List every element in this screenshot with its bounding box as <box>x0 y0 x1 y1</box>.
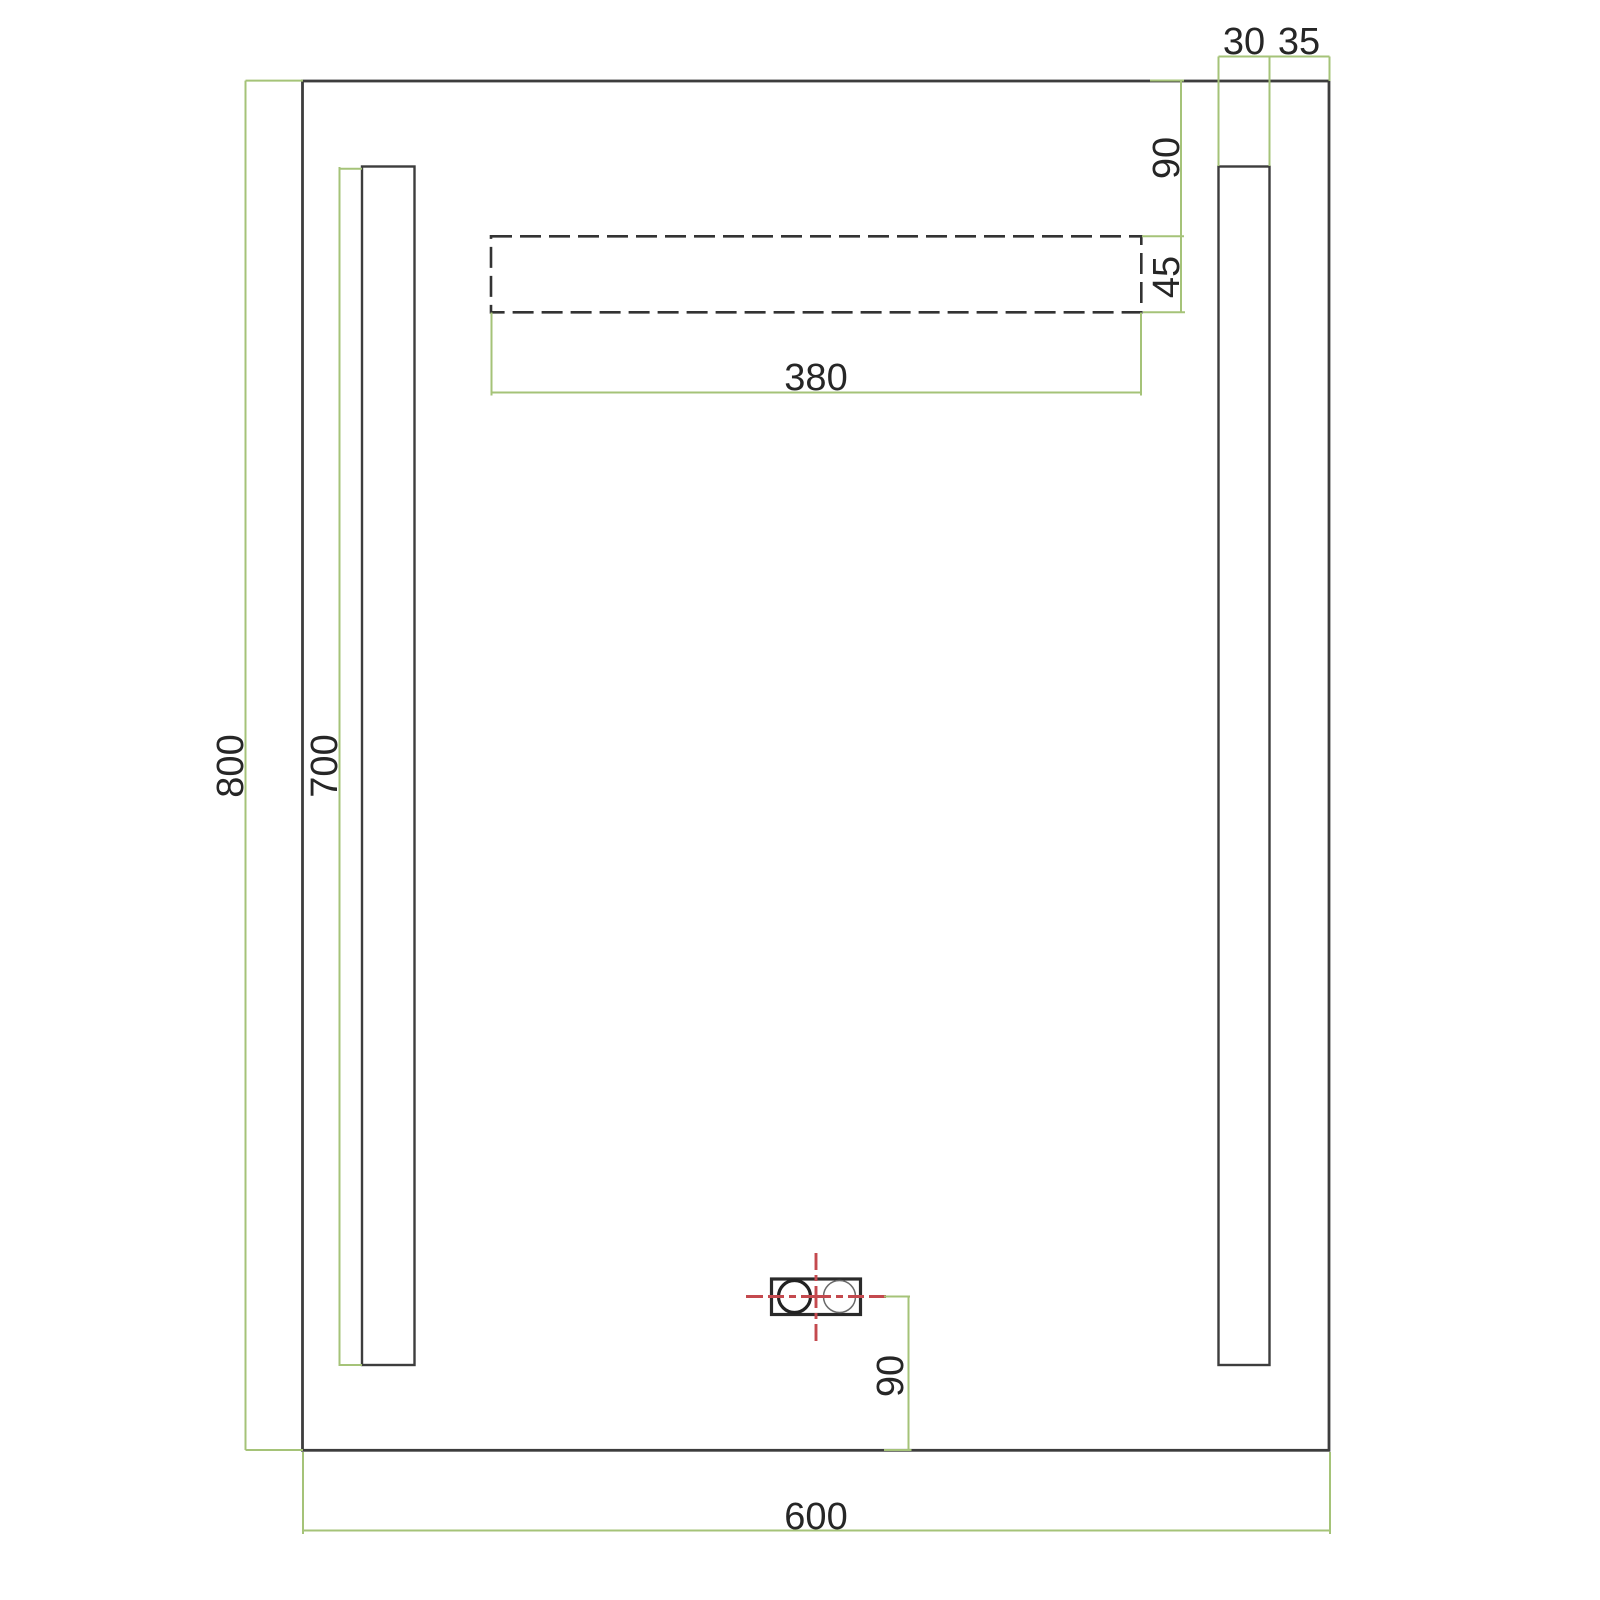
svg-text:35: 35 <box>1278 21 1320 63</box>
svg-text:380: 380 <box>784 357 847 399</box>
svg-text:800: 800 <box>210 734 252 797</box>
svg-text:30: 30 <box>1223 21 1265 63</box>
svg-text:600: 600 <box>784 1496 847 1538</box>
svg-text:90: 90 <box>1146 137 1188 179</box>
svg-text:45: 45 <box>1146 256 1188 298</box>
svg-text:700: 700 <box>304 734 346 797</box>
svg-text:90: 90 <box>870 1355 912 1397</box>
